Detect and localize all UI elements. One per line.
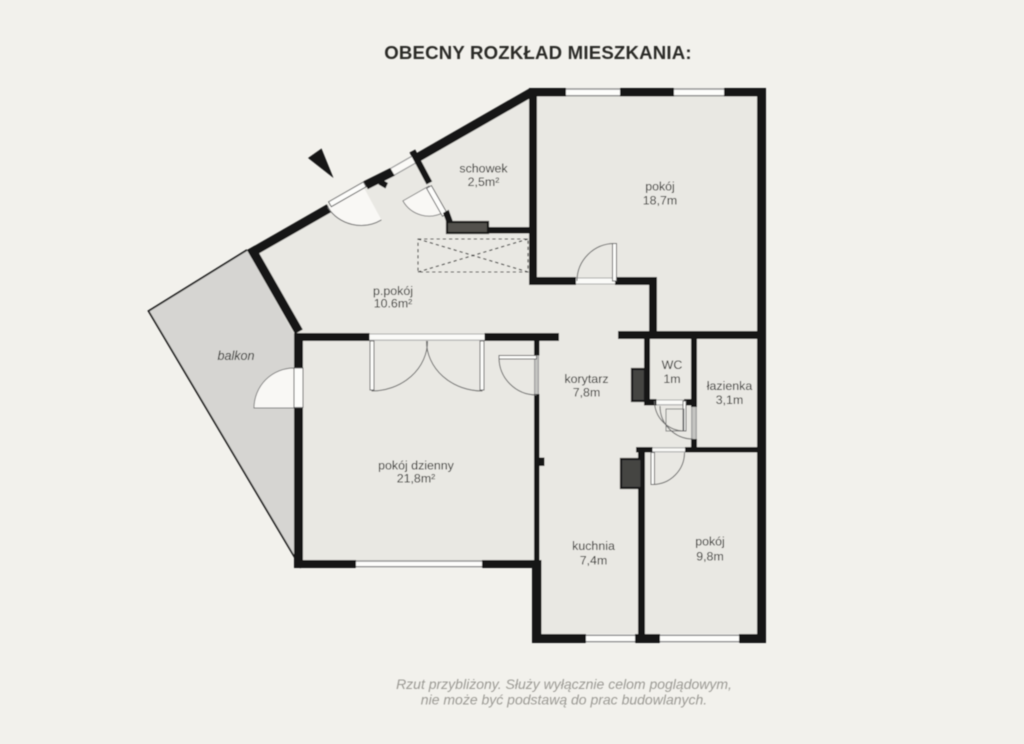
svg-text:1m: 1m <box>663 372 680 386</box>
svg-text:balkon: balkon <box>217 349 254 363</box>
svg-text:3,1m: 3,1m <box>716 393 744 407</box>
svg-text:nie może być podstawą do prac: nie może być podstawą do prac budowlanyc… <box>421 692 707 708</box>
svg-text:7,8m: 7,8m <box>573 386 601 400</box>
svg-text:korytarz: korytarz <box>564 372 608 386</box>
svg-text:pokój dzienny: pokój dzienny <box>378 459 455 473</box>
svg-text:7,4m: 7,4m <box>580 554 608 568</box>
svg-text:2,5m²: 2,5m² <box>468 175 500 189</box>
svg-text:łazienka: łazienka <box>707 379 753 393</box>
svg-text:18,7m: 18,7m <box>643 194 677 208</box>
svg-text:OBECNY ROZKŁAD MIESZKANIA:: OBECNY ROZKŁAD MIESZKANIA: <box>384 42 692 63</box>
svg-text:schowek: schowek <box>459 162 508 176</box>
svg-text:WC: WC <box>662 358 683 372</box>
svg-text:pokój: pokój <box>695 535 725 549</box>
svg-text:kuchnia: kuchnia <box>572 539 615 553</box>
svg-text:Rzut przybliżony. Służy wyłącz: Rzut przybliżony. Służy wyłącznie celom … <box>396 676 732 692</box>
svg-text:21,8m²: 21,8m² <box>397 472 436 486</box>
svg-text:pokój: pokój <box>645 180 675 194</box>
svg-text:10.6m²: 10.6m² <box>374 297 413 311</box>
svg-text:9,8m: 9,8m <box>696 550 724 564</box>
